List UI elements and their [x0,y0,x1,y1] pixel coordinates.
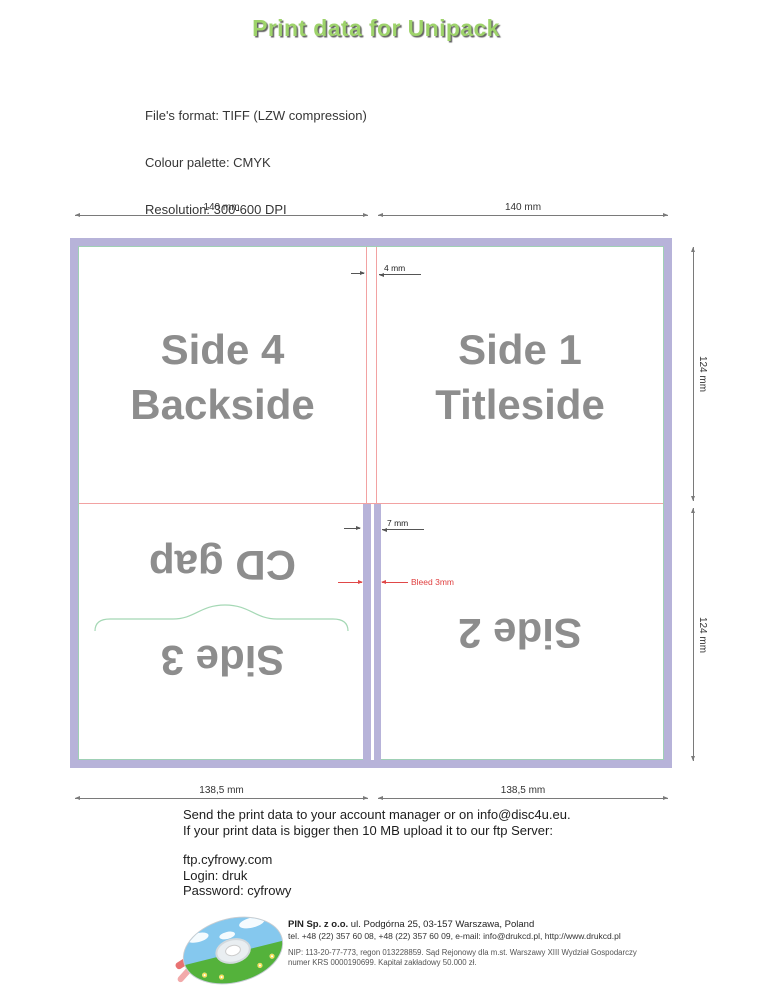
company-name: PIN Sp. z o.o. [288,919,348,930]
panel-side1-titleside: Side 1 Titleside [377,322,663,432]
bleed-label: Bleed 3mm [411,577,454,587]
spec-line: Colour palette: CMYK [145,155,520,171]
dimension-label: 124 mm [697,356,708,392]
dimension-label: 124 mm [697,616,708,652]
company-registry: NIP: 113-20-77-773, regon 013228859. Sąd… [288,948,637,967]
glue-strip-slit [371,504,374,760]
panel-cd-gap: CD gap [79,541,366,589]
dimension-label: 140 mm [75,202,368,213]
gap-top-annotation: 4 mm [379,263,421,275]
dimension-bottom-right: 138,5 mm [378,785,668,799]
dimension-arrow-line [693,508,694,761]
bleed-leader-left [338,582,362,583]
panel-side4-backside: Side 4 Backside [79,322,366,432]
bleed-leader-right [382,582,408,583]
panel-label: Side 4 [79,322,366,377]
dimension-label: 138,5 mm [75,785,368,796]
ftp-password: Password: cyfrowy [183,883,291,899]
gap-bottom-annotation: 7 mm [382,518,424,530]
panel-label: Titleside [377,377,663,432]
dimension-arrow-line [378,798,668,799]
company-info: PIN Sp. z o.o. ul. Podgórna 25, 03-157 W… [288,919,637,967]
company-contact: tel. +48 (22) 357 60 08, +48 (22) 357 60… [288,931,637,941]
ftp-login: Login: druk [183,868,291,884]
print-spec-sheet: Print data for Unipack File's format: TI… [0,0,768,994]
send-instructions: Send the print data to your account mana… [183,807,571,838]
panel-side3: Side 3 [79,636,366,684]
company-name-address: PIN Sp. z o.o. ul. Podgórna 25, 03-157 W… [288,919,637,930]
dimension-arrow-line [75,798,368,799]
dimension-right-top: 124 mm [693,247,705,501]
cd-logo [176,915,286,987]
gap-bottom-label: 7 mm [382,518,424,530]
gap-top-leader-left [351,273,364,274]
dimension-right-bottom: 124 mm [693,508,705,761]
ftp-credentials: ftp.cyfrowy.com Login: druk Password: cy… [183,852,291,899]
cd-disc-icon [176,907,291,994]
dimension-bottom-left: 138,5 mm [75,785,368,799]
cd-hole [224,943,242,958]
spec-line: File's format: TIFF (LZW compression) [145,108,520,124]
dimension-top-left: 140 mm [75,202,368,216]
dimension-arrow-line [693,247,694,501]
panel-label: Backside [79,377,366,432]
instruction-line: If your print data is bigger then 10 MB … [183,823,571,839]
dimension-label: 140 mm [378,202,668,213]
dimension-arrow-line [378,215,668,216]
ftp-host: ftp.cyfrowy.com [183,852,291,868]
gap-top-label: 4 mm [379,263,421,275]
page-title: Print data for Unipack [0,15,752,42]
panel-side2: Side 2 [377,609,663,657]
fold-guide-vertical-left [366,247,367,503]
instruction-line: Send the print data to your account mana… [183,807,571,823]
dimension-label: 138,5 mm [378,785,668,796]
dimension-arrow-line [75,215,368,216]
dimension-top-right: 140 mm [378,202,668,216]
gap-bottom-leader-left [344,528,360,529]
company-address: ul. Podgórna 25, 03-157 Warszawa, Poland [348,919,534,930]
registry-line: NIP: 113-20-77-773, regon 013228859. Sąd… [288,948,637,958]
registry-line: numer KRS 0000190699. Kapitał zakładowy … [288,958,637,968]
panel-label: Side 1 [377,322,663,377]
cd-pocket-notch-curve [90,598,356,638]
